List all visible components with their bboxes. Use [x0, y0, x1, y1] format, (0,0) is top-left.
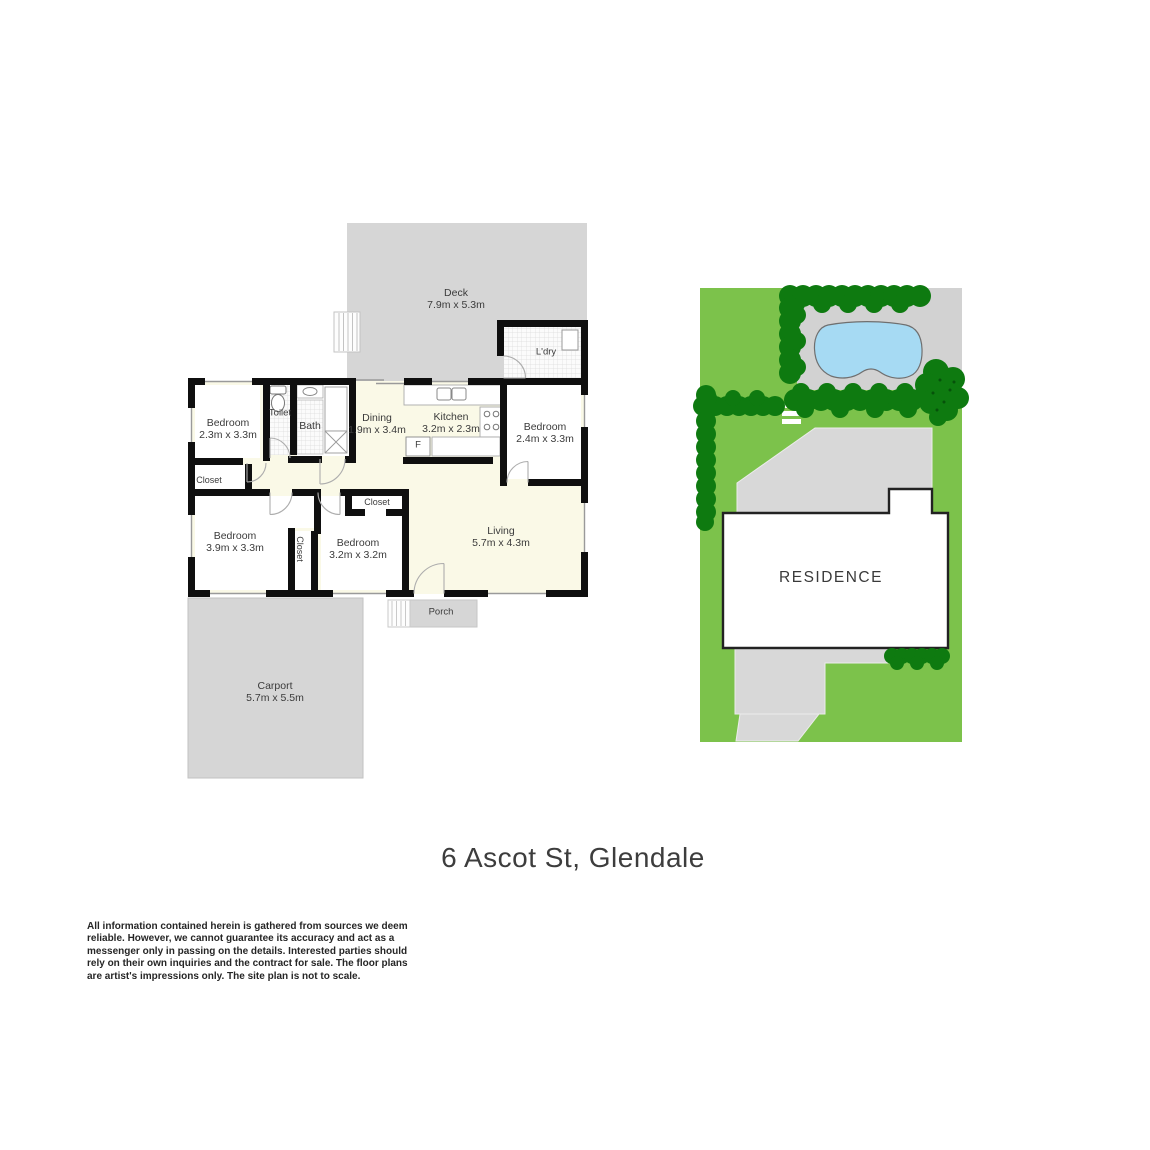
room-dims: 2.4m x 3.3m: [516, 433, 574, 445]
room-dims: 3.2m x 2.3m: [422, 423, 480, 435]
page-title: 6 Ascot St, Glendale: [441, 842, 705, 874]
room-name: Bedroom: [516, 421, 574, 433]
swimming-pool: [814, 322, 922, 379]
room-label-living: Living 5.7m x 4.3m: [472, 525, 530, 549]
room-label-closet-2: Closet: [364, 497, 390, 507]
laundry-tub-icon: [562, 330, 578, 350]
room-label-bath: Bath: [299, 420, 321, 432]
room-dims: 2.3m x 3.3m: [199, 429, 257, 441]
room-name: Kitchen: [422, 411, 480, 423]
disclaimer-line: rely on their own inquiries and the cont…: [87, 958, 408, 970]
room-name: Bedroom: [206, 530, 264, 542]
label-fridge: F: [415, 441, 421, 452]
room-name: Bedroom: [329, 537, 387, 549]
porch-steps-icon: [388, 600, 410, 627]
room-name: Porch: [429, 608, 454, 619]
residence-label: RESIDENCE: [779, 569, 883, 587]
floorplan-page: Deck 7.9m x 5.3m L'dry Bedroom 2.3m x 3.…: [0, 0, 1150, 1150]
room-name: Living: [472, 525, 530, 537]
room-dims: 5.7m x 4.3m: [472, 537, 530, 549]
room-label-carport: Carport 5.7m x 5.5m: [246, 680, 304, 704]
room-dims: 3.9m x 3.3m: [206, 542, 264, 554]
room-name: L'dry: [536, 348, 556, 359]
disclaimer-line: All information contained herein is gath…: [87, 921, 408, 933]
room-dims: 3.2m x 3.2m: [329, 549, 387, 561]
room-label-bedroom-2: Bedroom 2.4m x 3.3m: [516, 421, 574, 445]
room-label-porch: Porch: [429, 608, 454, 619]
deck-stairs-icon: [334, 312, 360, 352]
room-name: Bath: [299, 420, 321, 432]
bath-sink-icon: [303, 388, 317, 396]
room-label-closet-1: Closet: [196, 475, 222, 485]
disclaimer-line: are artist's impressions only. The site …: [87, 971, 408, 983]
room-label-toilet: Toilet: [269, 409, 291, 420]
room-dims: 1.9m x 3.4m: [348, 424, 406, 436]
room-name: Closet: [364, 497, 390, 507]
room-label-dining: Dining 1.9m x 3.4m: [348, 412, 406, 436]
room-name: Carport: [246, 680, 304, 692]
room-label-deck: Deck 7.9m x 5.3m: [427, 287, 485, 311]
room-name: F: [415, 441, 421, 452]
room-name: Closet: [295, 536, 305, 562]
hedge-residence-right: [884, 648, 950, 670]
room-name: Bedroom: [199, 417, 257, 429]
room-label-closet-hall: Closet: [295, 536, 305, 562]
toilet-icon: [270, 386, 286, 394]
room-label-bedroom-3: Bedroom 3.9m x 3.3m: [206, 530, 264, 554]
kitchen-sink-icon: [437, 388, 451, 400]
room-label-bedroom-4: Bedroom 3.2m x 3.2m: [329, 537, 387, 561]
room-label-bedroom-1: Bedroom 2.3m x 3.3m: [199, 417, 257, 441]
site-plan: [693, 285, 969, 742]
disclaimer-text: All information contained herein is gath…: [87, 921, 408, 983]
hedge-left-lower: [696, 385, 716, 531]
hedge-left-upper: [779, 297, 806, 384]
stove-icon: [480, 407, 502, 437]
disclaimer-line: messenger only in passing on the details…: [87, 946, 408, 958]
room-label-kitchen: Kitchen 3.2m x 2.3m: [422, 411, 480, 435]
room-name: Deck: [427, 287, 485, 299]
room-name: Closet: [196, 475, 222, 485]
room-dims: 5.7m x 5.5m: [246, 692, 304, 704]
room-name: Toilet: [269, 409, 291, 420]
room-name: Dining: [348, 412, 406, 424]
room-dims: 7.9m x 5.3m: [427, 299, 485, 311]
disclaimer-line: reliable. However, we cannot guarantee i…: [87, 933, 408, 945]
room-label-laundry: L'dry: [536, 348, 556, 359]
